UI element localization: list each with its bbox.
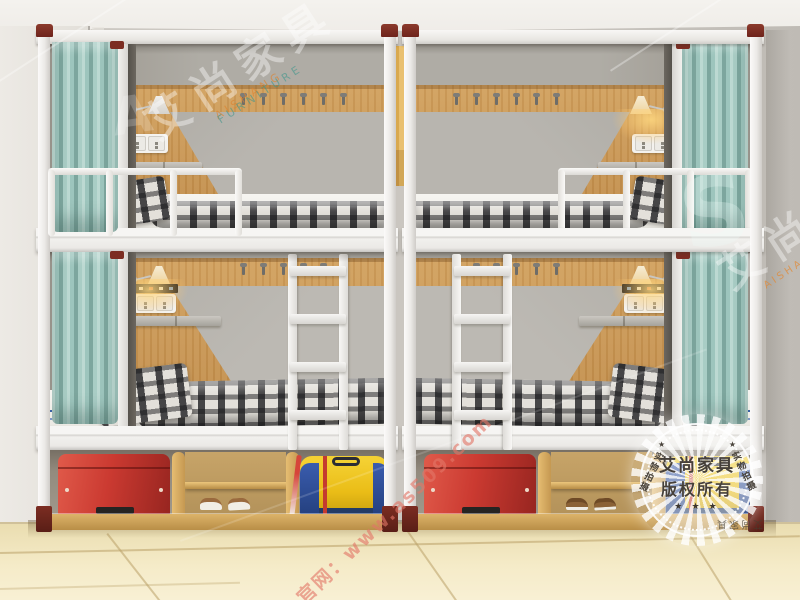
product-photo-bunk-beds: A S 艾尚家具 AISHANG FURNITURE 艾尚家具 AISHANG …	[0, 0, 800, 600]
shoe	[566, 498, 588, 510]
slipper	[200, 498, 222, 510]
post-foot	[382, 506, 398, 532]
ladder-step	[454, 410, 510, 420]
ladder-step	[290, 266, 346, 276]
guardrail	[48, 168, 242, 230]
frame-post	[38, 32, 50, 530]
guardrail-post	[170, 170, 177, 236]
cubby-shelf	[185, 482, 286, 489]
suitcase-stud	[525, 488, 529, 492]
frame-gap	[128, 252, 136, 426]
ladder-rail	[452, 254, 461, 450]
ladder	[452, 254, 512, 450]
frame-post	[384, 32, 396, 530]
guardrail-post	[106, 170, 113, 236]
guardrail-post	[235, 170, 242, 236]
lamp-shade	[148, 96, 170, 114]
curtain-rod-bracket	[110, 251, 124, 259]
ladder	[288, 254, 348, 450]
guardrail-top	[48, 168, 242, 175]
curtain-rod-bracket	[110, 41, 124, 49]
red-suitcase	[58, 454, 170, 516]
stamp-star-icon: ★	[658, 440, 665, 449]
suitcase-stud	[65, 488, 69, 492]
stamp-star-icon: ★	[729, 440, 736, 449]
ladder-rail	[288, 254, 297, 450]
post-cap	[381, 24, 398, 37]
bunk-bed-left	[36, 24, 398, 530]
ladder-step	[290, 314, 346, 324]
duffel-bag	[300, 456, 388, 516]
privacy-curtain	[52, 252, 118, 424]
stamp-stars: ★ ★ ★	[631, 502, 763, 512]
frame-trim	[118, 252, 128, 426]
post-cap	[747, 24, 764, 37]
guardrail-post	[48, 170, 55, 236]
suitcase-stud	[431, 488, 435, 492]
wall-shadow	[766, 30, 790, 524]
cubby-divider	[172, 452, 185, 516]
ladder-step	[454, 266, 510, 276]
lamp-arm	[135, 105, 151, 111]
stamp-bottom-text: 艾尚家具	[631, 518, 763, 533]
ladder-step	[290, 362, 346, 372]
cubby-divider	[538, 452, 551, 516]
post-cap	[36, 24, 53, 37]
shoe	[594, 497, 617, 510]
ladder-step	[290, 410, 346, 420]
post-foot	[36, 506, 52, 532]
bag-handle	[332, 457, 360, 466]
lamp-arm	[135, 275, 151, 281]
lamp-shade	[148, 266, 170, 284]
red-suitcase	[424, 454, 536, 516]
ladder-step	[454, 314, 510, 324]
slipper	[228, 497, 251, 510]
post-foot	[402, 506, 418, 532]
suitcase-stud	[159, 488, 163, 492]
post-cap	[402, 24, 419, 37]
ladder-rail	[339, 254, 348, 450]
copyright-stamp: 艾尚家具 版权所有 ★ ★ ★ ★ ★ 实物拍摄 实物拍摄 艾尚家具	[631, 414, 763, 546]
ladder-step	[454, 362, 510, 372]
